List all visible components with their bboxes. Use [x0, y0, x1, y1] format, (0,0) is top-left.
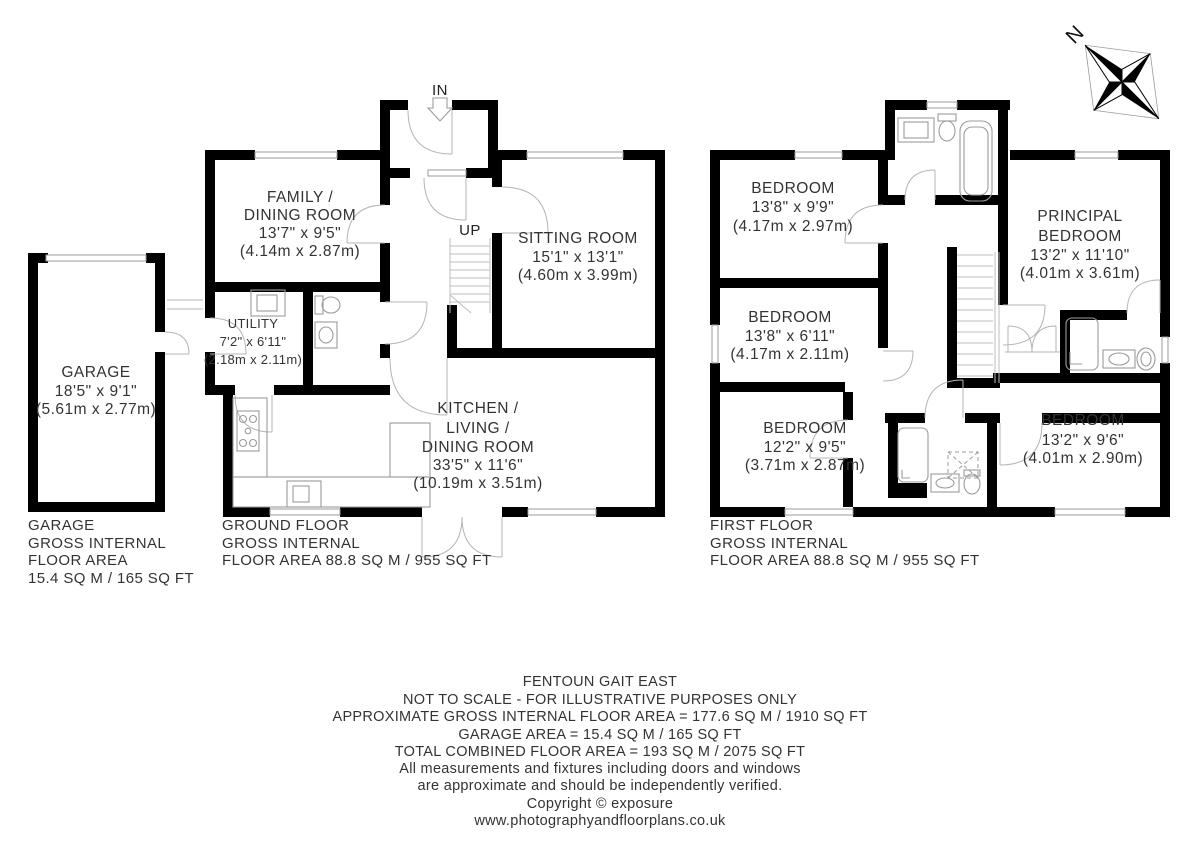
svg-text:are approximate and should be: are approximate and should be independen…	[418, 778, 783, 794]
utility-sink-icon	[251, 290, 285, 316]
ground-floorplan: FAMILY / DINING ROOM 13'7" x 9'5" (4.14m…	[204, 82, 665, 557]
svg-text:13'8" x 9'9": 13'8" x 9'9"	[752, 199, 834, 216]
garage-door	[46, 255, 146, 261]
website-label: www.photographyandfloorplans.co.uk	[473, 813, 726, 829]
svg-text:All measurements and fixtures: All measurements and fixtures including …	[399, 761, 801, 777]
garage-area-label: GARAGE GROSS INTERNAL FLOOR AREA 15.4 SQ…	[28, 517, 194, 587]
svg-text:GARAGE: GARAGE	[28, 517, 95, 534]
first-floor-stairs	[957, 252, 999, 383]
svg-text:FLOOR AREA 88.8 SQ M / 955 SQ: FLOOR AREA 88.8 SQ M / 955 SQ FT	[222, 552, 492, 569]
svg-text:33'5" x 11'6": 33'5" x 11'6"	[433, 457, 523, 474]
floorplan-drawing: GARAGE 18'5" x 9'1" (5.61m x 2.77m)	[0, 0, 1200, 848]
first-floor-room-labels: BEDROOM 13'8" x 9'9" (4.17m x 2.97m) PRI…	[730, 180, 1143, 474]
first-floorplan: BEDROOM 13'8" x 9'9" (4.17m x 2.97m) PRI…	[710, 100, 1170, 517]
svg-text:13'2" x 11'10": 13'2" x 11'10"	[1030, 247, 1129, 264]
ground-floor-area-label: GROUND FLOOR GROSS INTERNAL FLOOR AREA 8…	[222, 517, 492, 569]
garage-floorplan: GARAGE 18'5" x 9'1" (5.61m x 2.77m)	[28, 253, 203, 512]
svg-text:(4.17m x 2.97m): (4.17m x 2.97m)	[733, 218, 853, 235]
bedroom4-label: BEDROOM	[1041, 412, 1125, 429]
svg-text:FLOOR AREA: FLOOR AREA	[28, 552, 128, 569]
principal-bedroom-label: PRINCIPAL	[1037, 208, 1122, 225]
svg-text:GROSS INTERNAL: GROSS INTERNAL	[710, 535, 848, 552]
svg-text:13'8" x 6'11": 13'8" x 6'11"	[745, 328, 835, 345]
svg-text:(2.18m x 2.11m): (2.18m x 2.11m)	[204, 352, 302, 367]
utility-label: UTILITY	[228, 316, 279, 331]
svg-text:15.4 SQ M / 165 SQ FT: 15.4 SQ M / 165 SQ FT	[28, 570, 194, 587]
first-floor-area-label: FIRST FLOOR GROSS INTERNAL FLOOR AREA 88…	[710, 517, 980, 569]
svg-text:APPROXIMATE GROSS INTERNAL FLO: APPROXIMATE GROSS INTERNAL FLOOR AREA = …	[332, 709, 867, 725]
in-label: IN	[432, 82, 448, 99]
svg-text:(4.01m x 3.61m): (4.01m x 3.61m)	[1020, 265, 1140, 282]
svg-text:(3.71m x 2.87m): (3.71m x 2.87m)	[745, 457, 865, 474]
garage-room-label: GARAGE 18'5" x 9'1" (5.61m x 2.77m)	[36, 364, 156, 418]
svg-text:GROSS INTERNAL: GROSS INTERNAL	[222, 535, 360, 552]
bathroom-fixtures	[898, 114, 992, 201]
svg-text:FLOOR AREA 88.8 SQ M / 955 SQ: FLOOR AREA 88.8 SQ M / 955 SQ FT	[710, 552, 980, 569]
kitchen-sink-icon	[287, 481, 321, 507]
svg-text:7'2" x 6'11": 7'2" x 6'11"	[220, 334, 287, 349]
svg-text:(4.01m x 2.90m): (4.01m x 2.90m)	[1023, 450, 1143, 467]
svg-text:12'2" x 9'5": 12'2" x 9'5"	[764, 439, 846, 456]
svg-text:NOT TO SCALE - FOR ILLUSTRATIV: NOT TO SCALE - FOR ILLUSTRATIVE PURPOSES…	[403, 692, 797, 708]
svg-text:15'1" x 13'1": 15'1" x 13'1"	[532, 249, 624, 266]
bedroom3-label: BEDROOM	[763, 420, 847, 437]
property-title: FENTOUN GAIT EAST	[523, 674, 677, 690]
bedroom2-label: BEDROOM	[748, 309, 832, 326]
up-label: UP	[459, 222, 481, 239]
svg-text:13'2" x 9'6": 13'2" x 9'6"	[1042, 432, 1124, 449]
footer-text-block: FENTOUN GAIT EAST NOT TO SCALE - FOR ILL…	[332, 674, 867, 829]
svg-text:(4.60m x 3.99m): (4.60m x 3.99m)	[518, 267, 638, 284]
wc-sink-icon	[315, 322, 337, 348]
shower-room-sink-icon	[931, 474, 959, 492]
kitchen-label: KITCHEN /	[437, 400, 518, 417]
bedroom1-label: BEDROOM	[751, 180, 835, 197]
svg-text:13'7" x 9'5": 13'7" x 9'5"	[259, 225, 341, 242]
svg-text:FIRST FLOOR: FIRST FLOOR	[710, 517, 813, 534]
entrance-arrow-icon	[428, 98, 452, 121]
bathroom-toilet-icon	[938, 114, 956, 121]
compass-rose: N	[1039, 0, 1187, 147]
ground-floor-stairs	[450, 238, 490, 313]
family-room-label: FAMILY /	[267, 189, 334, 206]
floorplan-page: GARAGE 18'5" x 9'1" (5.61m x 2.77m)	[0, 0, 1200, 848]
svg-text:GROSS INTERNAL: GROSS INTERNAL	[28, 535, 166, 552]
svg-text:BEDROOM: BEDROOM	[1038, 228, 1122, 245]
north-label: N	[1061, 21, 1088, 48]
ensuite-fixtures	[1066, 318, 1155, 370]
ensuite-shower-icon	[1066, 318, 1098, 370]
svg-text:DINING ROOM: DINING ROOM	[244, 207, 356, 224]
svg-text:TOTAL COMBINED FLOOR AREA = 19: TOTAL COMBINED FLOOR AREA = 193 SQ M / 2…	[395, 744, 805, 760]
svg-text:(4.14m x 2.87m): (4.14m x 2.87m)	[240, 243, 360, 260]
svg-text:LIVING /: LIVING /	[446, 420, 510, 437]
svg-text:(10.19m x 3.51m): (10.19m x 3.51m)	[413, 475, 542, 492]
svg-text:(4.17m x 2.11m): (4.17m x 2.11m)	[730, 346, 849, 363]
garage-name: GARAGE	[61, 364, 130, 381]
garage-side-door-arc	[165, 300, 203, 354]
svg-text:GROUND FLOOR: GROUND FLOOR	[222, 517, 349, 534]
kitchen-fixtures	[233, 398, 430, 507]
copyright-label: Copyright © exposure	[527, 796, 673, 812]
garage-dims-metric: (5.61m x 2.77m)	[36, 401, 156, 418]
garage-dims-imperial: 18'5" x 9'1"	[55, 383, 137, 400]
svg-text:GARAGE AREA = 15.4 SQ M / 165: GARAGE AREA = 15.4 SQ M / 165 SQ FT	[458, 727, 741, 743]
svg-text:DINING ROOM: DINING ROOM	[422, 439, 534, 456]
sitting-room-label: SITTING ROOM	[518, 230, 638, 247]
ensuite-toilet-icon	[1137, 348, 1155, 370]
